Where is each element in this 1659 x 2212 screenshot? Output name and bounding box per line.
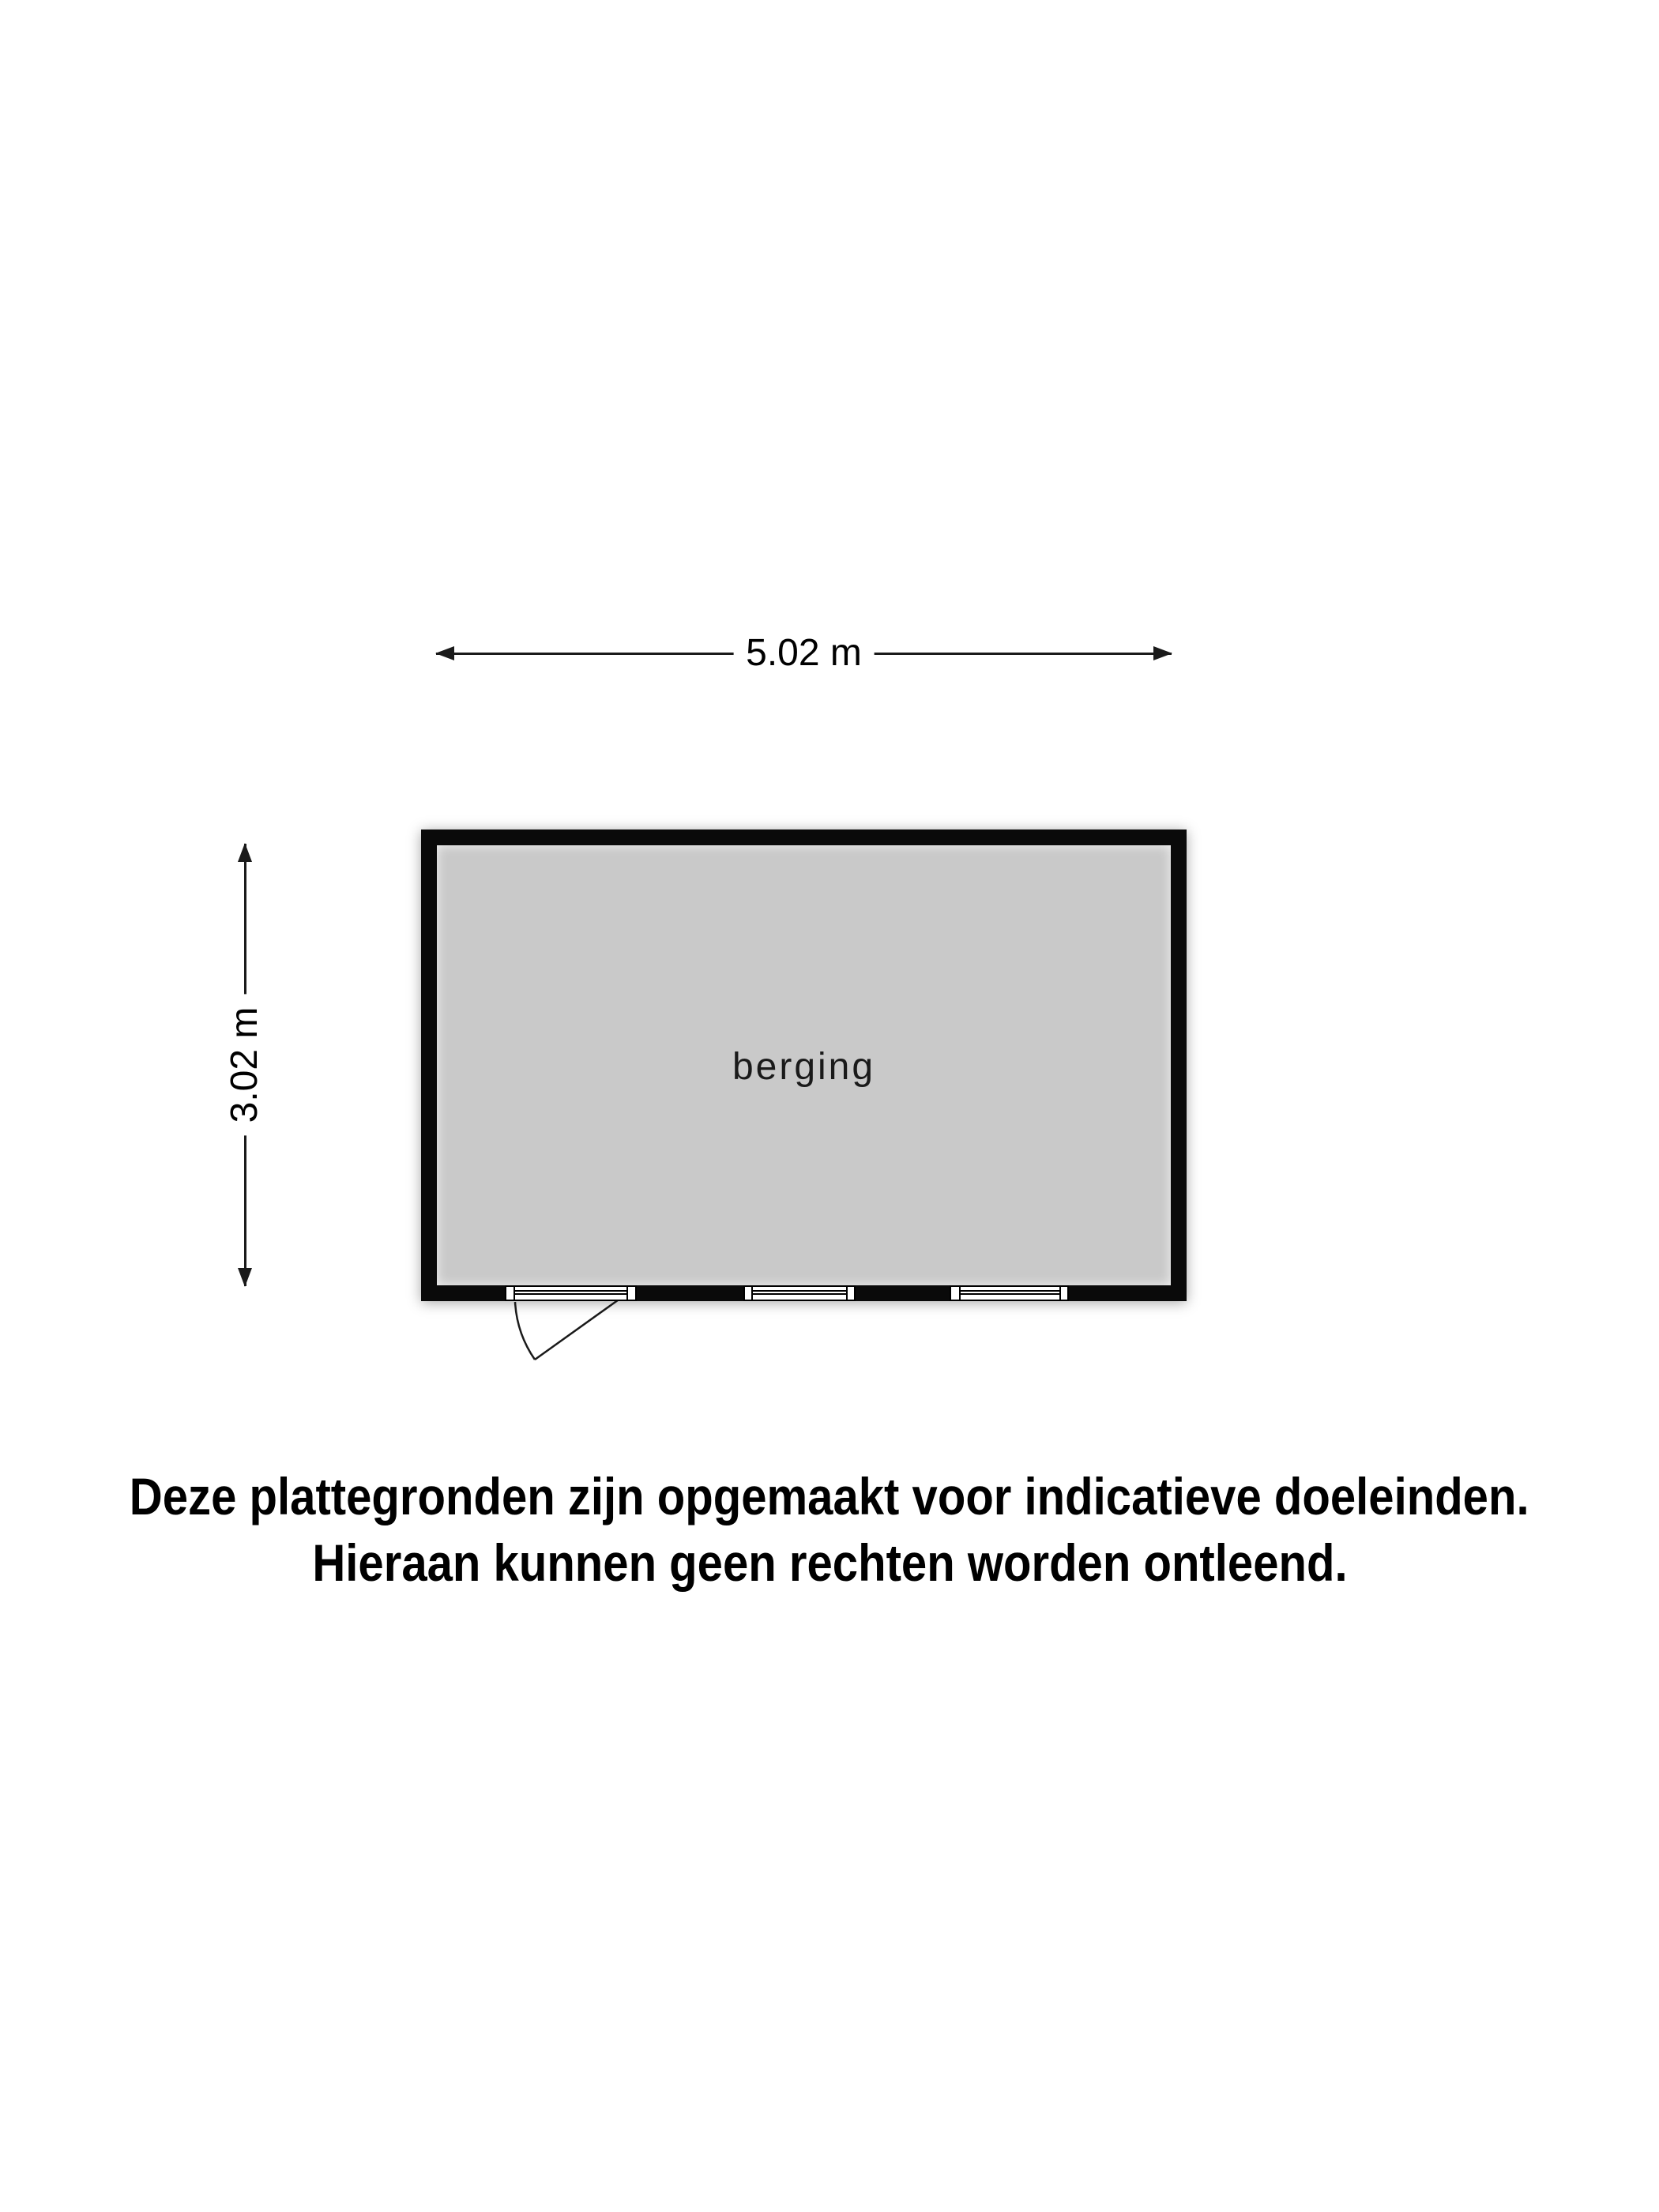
floorplan-canvas: 5.02 m 3.02 m berging Deze plattegronden…	[0, 0, 1659, 2212]
window-1-jamb-left	[743, 1285, 753, 1301]
door-opening	[515, 1285, 626, 1301]
width-dimension: 5.02 m	[436, 638, 1172, 669]
door-glass-lines	[515, 1290, 626, 1295]
window-2-jamb-left	[950, 1285, 961, 1301]
door-jamb-left	[505, 1285, 515, 1301]
window-1-glass-lines	[753, 1290, 846, 1295]
window-2-glass-lines	[961, 1290, 1059, 1295]
window-2-jamb-right	[1059, 1285, 1069, 1301]
window-2	[961, 1285, 1059, 1301]
arrowhead-right-icon	[1153, 646, 1172, 660]
room-berging: berging	[421, 829, 1187, 1301]
arrowhead-up-icon	[238, 843, 252, 862]
window-1-jamb-right	[846, 1285, 856, 1301]
arrowhead-down-icon	[238, 1268, 252, 1287]
disclaimer-line-1: Deze plattegronden zijn opgemaakt voor i…	[0, 1463, 1659, 1529]
room-floor: berging	[437, 845, 1171, 1285]
room-label: berging	[732, 1048, 875, 1086]
arrowhead-left-icon	[435, 646, 454, 660]
width-dimension-label: 5.02 m	[733, 631, 875, 675]
height-dimension-label: 3.02 m	[223, 995, 267, 1136]
window-1	[753, 1285, 846, 1301]
height-dimension: 3.02 m	[229, 844, 261, 1286]
door-jamb-right	[626, 1285, 637, 1301]
disclaimer: Deze plattegronden zijn opgemaakt voor i…	[0, 1463, 1659, 1596]
disclaimer-line-2: Hieraan kunnen geen rechten worden ontle…	[0, 1529, 1659, 1596]
